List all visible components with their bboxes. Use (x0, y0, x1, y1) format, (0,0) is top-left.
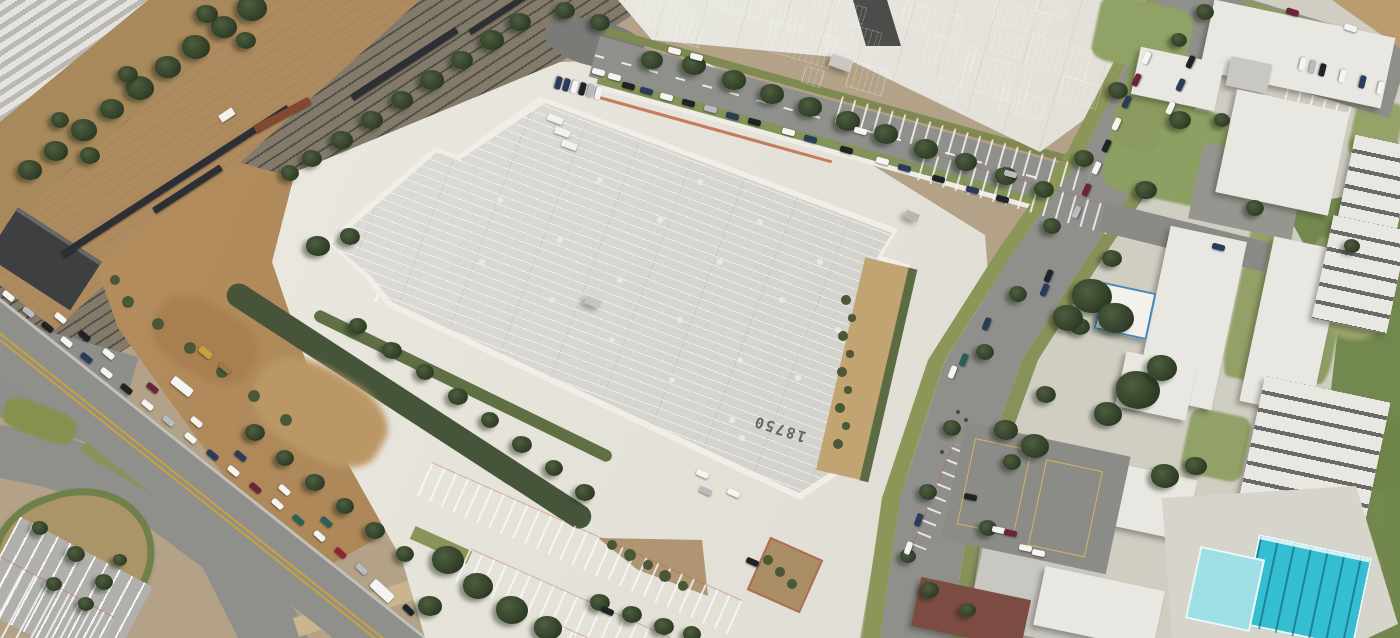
car (853, 126, 867, 135)
car (99, 367, 113, 380)
car (681, 98, 695, 107)
car (189, 416, 203, 429)
car (695, 469, 709, 480)
car (1039, 283, 1050, 297)
car (703, 104, 717, 113)
car (607, 72, 621, 81)
car (161, 415, 175, 428)
car (1018, 544, 1032, 553)
car (101, 348, 115, 361)
car (369, 578, 395, 603)
car (319, 515, 333, 528)
car (1141, 51, 1152, 65)
car (591, 67, 605, 76)
car (170, 375, 194, 397)
car (140, 399, 154, 412)
car (995, 194, 1009, 203)
car (1111, 117, 1122, 131)
car (40, 321, 54, 334)
car (839, 145, 853, 154)
car (248, 481, 262, 494)
car (689, 52, 703, 61)
car (1285, 7, 1299, 17)
car (1343, 23, 1357, 33)
car (667, 46, 681, 55)
car-layer (0, 0, 1400, 638)
car (1175, 78, 1186, 92)
car (1211, 243, 1225, 252)
car (639, 86, 653, 95)
car (931, 174, 945, 183)
car (1131, 73, 1142, 87)
car (1043, 269, 1054, 283)
car (59, 336, 73, 349)
car (1003, 169, 1017, 178)
car (1185, 55, 1196, 69)
car (1091, 161, 1102, 175)
car (981, 317, 991, 331)
car (1101, 139, 1112, 153)
car (963, 493, 977, 502)
car (1031, 549, 1045, 558)
car (401, 603, 415, 616)
car (803, 134, 817, 143)
car (333, 546, 347, 559)
car (1358, 75, 1367, 89)
car (205, 449, 219, 462)
car (145, 382, 159, 395)
car (77, 330, 91, 343)
car (947, 365, 957, 379)
car (233, 450, 247, 463)
car (277, 483, 291, 496)
car (312, 529, 326, 542)
car (747, 117, 761, 126)
car (745, 557, 759, 568)
car (1298, 57, 1307, 71)
car (197, 345, 213, 360)
car (1003, 529, 1017, 538)
car (897, 163, 911, 172)
car (21, 306, 35, 319)
aerial-photo: 18750 (0, 0, 1400, 638)
car (913, 513, 923, 527)
car (875, 156, 889, 165)
car (600, 606, 614, 617)
car (725, 111, 739, 120)
car (593, 86, 602, 100)
car (1165, 101, 1176, 115)
car (53, 312, 67, 325)
car (270, 497, 284, 510)
car (1121, 95, 1132, 109)
car (1308, 60, 1317, 74)
car (726, 488, 740, 499)
car (354, 562, 368, 575)
car (1376, 81, 1385, 95)
car (621, 81, 635, 90)
car (1081, 183, 1092, 197)
car (659, 92, 673, 101)
car (1338, 69, 1347, 83)
car (218, 361, 233, 374)
car (781, 127, 795, 136)
car (965, 185, 979, 194)
car (1071, 205, 1082, 219)
car (958, 353, 968, 367)
car (291, 513, 305, 526)
car (1318, 63, 1327, 77)
car (1, 290, 15, 303)
car (903, 541, 913, 555)
car (119, 383, 133, 396)
car (698, 486, 712, 497)
car (183, 432, 197, 445)
car (79, 352, 93, 365)
car (226, 465, 240, 478)
